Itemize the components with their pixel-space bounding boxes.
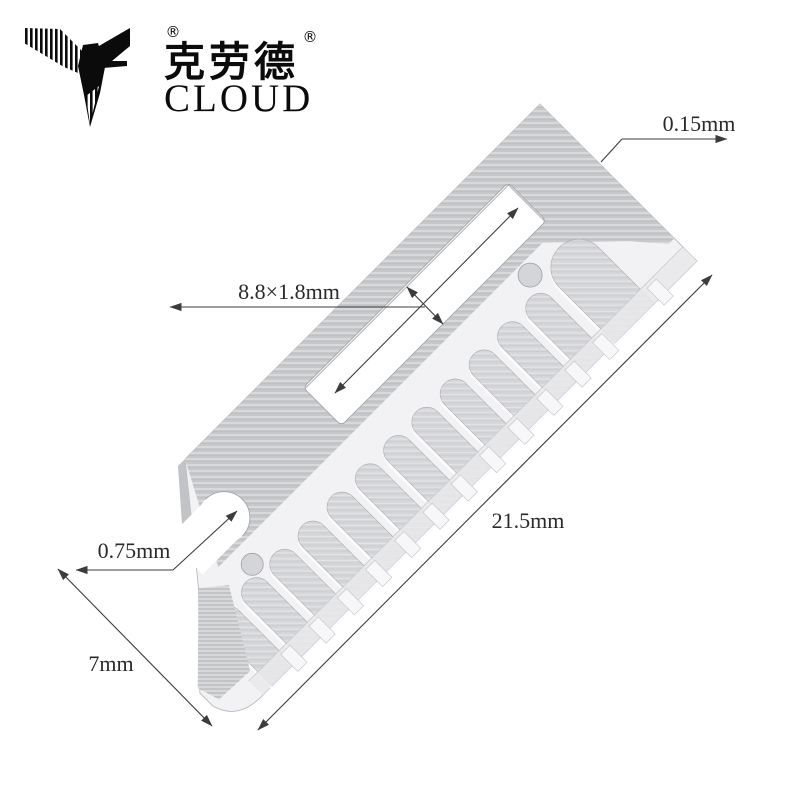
dimension-width — [58, 569, 212, 726]
width-label: 7mm — [88, 651, 133, 676]
brand-name-en: CLOUD — [164, 77, 313, 120]
notch-label: 0.75mm — [98, 538, 171, 563]
blade-illustration — [75, 104, 702, 731]
length-label: 21.5mm — [492, 508, 565, 533]
thickness-label: 0.15mm — [663, 111, 736, 136]
registered-mark-text: ® — [303, 28, 318, 46]
dimension-thickness — [601, 139, 727, 162]
brand-logo: ® 克劳德 ® CLOUD — [24, 23, 318, 127]
product-image: 0.15mm 8.8×1.8mm 21.5mm 0.75mm 7mm ® 克劳德… — [0, 0, 800, 800]
bird-logo-icon — [24, 28, 130, 127]
slot-size-label: 8.8×1.8mm — [238, 279, 340, 304]
product-illustration: 0.15mm 8.8×1.8mm 21.5mm 0.75mm 7mm ® 克劳德… — [0, 0, 800, 800]
